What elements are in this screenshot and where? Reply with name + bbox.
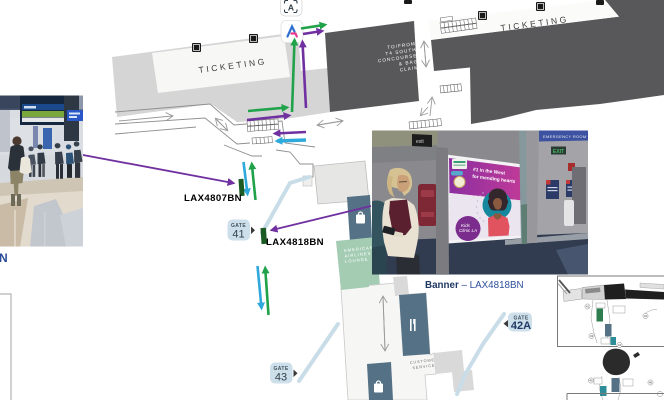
svg-text:42A: 42A (511, 320, 531, 332)
svg-text:EXIT: EXIT (553, 149, 564, 155)
svg-text:41: 41 (586, 305, 590, 309)
svg-text:42: 42 (644, 314, 648, 318)
svg-text:43: 43 (590, 334, 594, 338)
svg-text:A: A (288, 3, 294, 13)
svg-text:Clinic LA: Clinic LA (459, 228, 477, 233)
svg-text:46: 46 (649, 381, 653, 385)
svg-text:EMERGENCY ROOM ONLY: EMERGENCY ROOM ONLY (543, 134, 600, 139)
svg-text:44: 44 (618, 343, 622, 347)
svg-text:43: 43 (275, 372, 287, 384)
svg-text:Banner – LAX4818BN: Banner – LAX4818BN (425, 280, 524, 291)
svg-text:45: 45 (589, 379, 593, 383)
svg-text:41: 41 (232, 229, 244, 241)
svg-text:N: N (0, 251, 8, 265)
svg-text:exit: exit (416, 139, 424, 145)
svg-text:LAX4818BN: LAX4818BN (266, 237, 324, 248)
svg-text:LAX4807BN: LAX4807BN (184, 193, 242, 204)
